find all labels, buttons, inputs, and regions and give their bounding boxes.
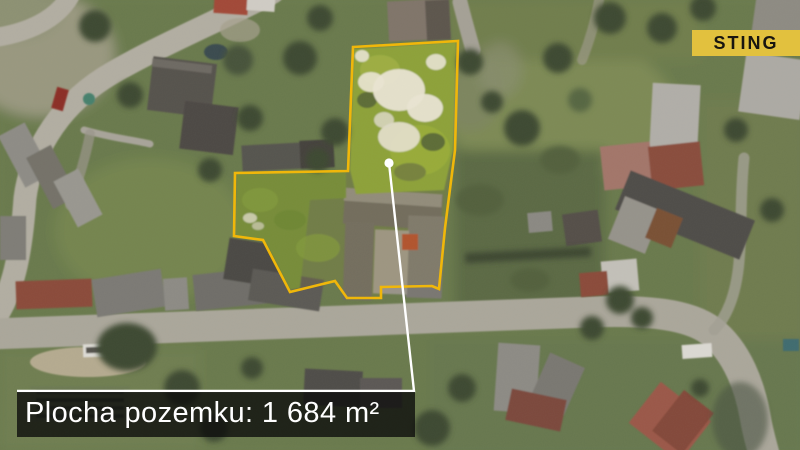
aerial-photo bbox=[0, 0, 800, 450]
area-label-band: Plocha pozemku: 1 684 m² bbox=[17, 392, 415, 437]
brand-badge: STING bbox=[692, 30, 800, 56]
brand-logo-text: STING bbox=[713, 33, 778, 54]
real-estate-aerial-view: Plocha pozemku: 1 684 m² STING bbox=[0, 0, 800, 450]
area-label-text: Plocha pozemku: 1 684 m² bbox=[25, 397, 380, 430]
pointer-dot bbox=[384, 158, 393, 167]
